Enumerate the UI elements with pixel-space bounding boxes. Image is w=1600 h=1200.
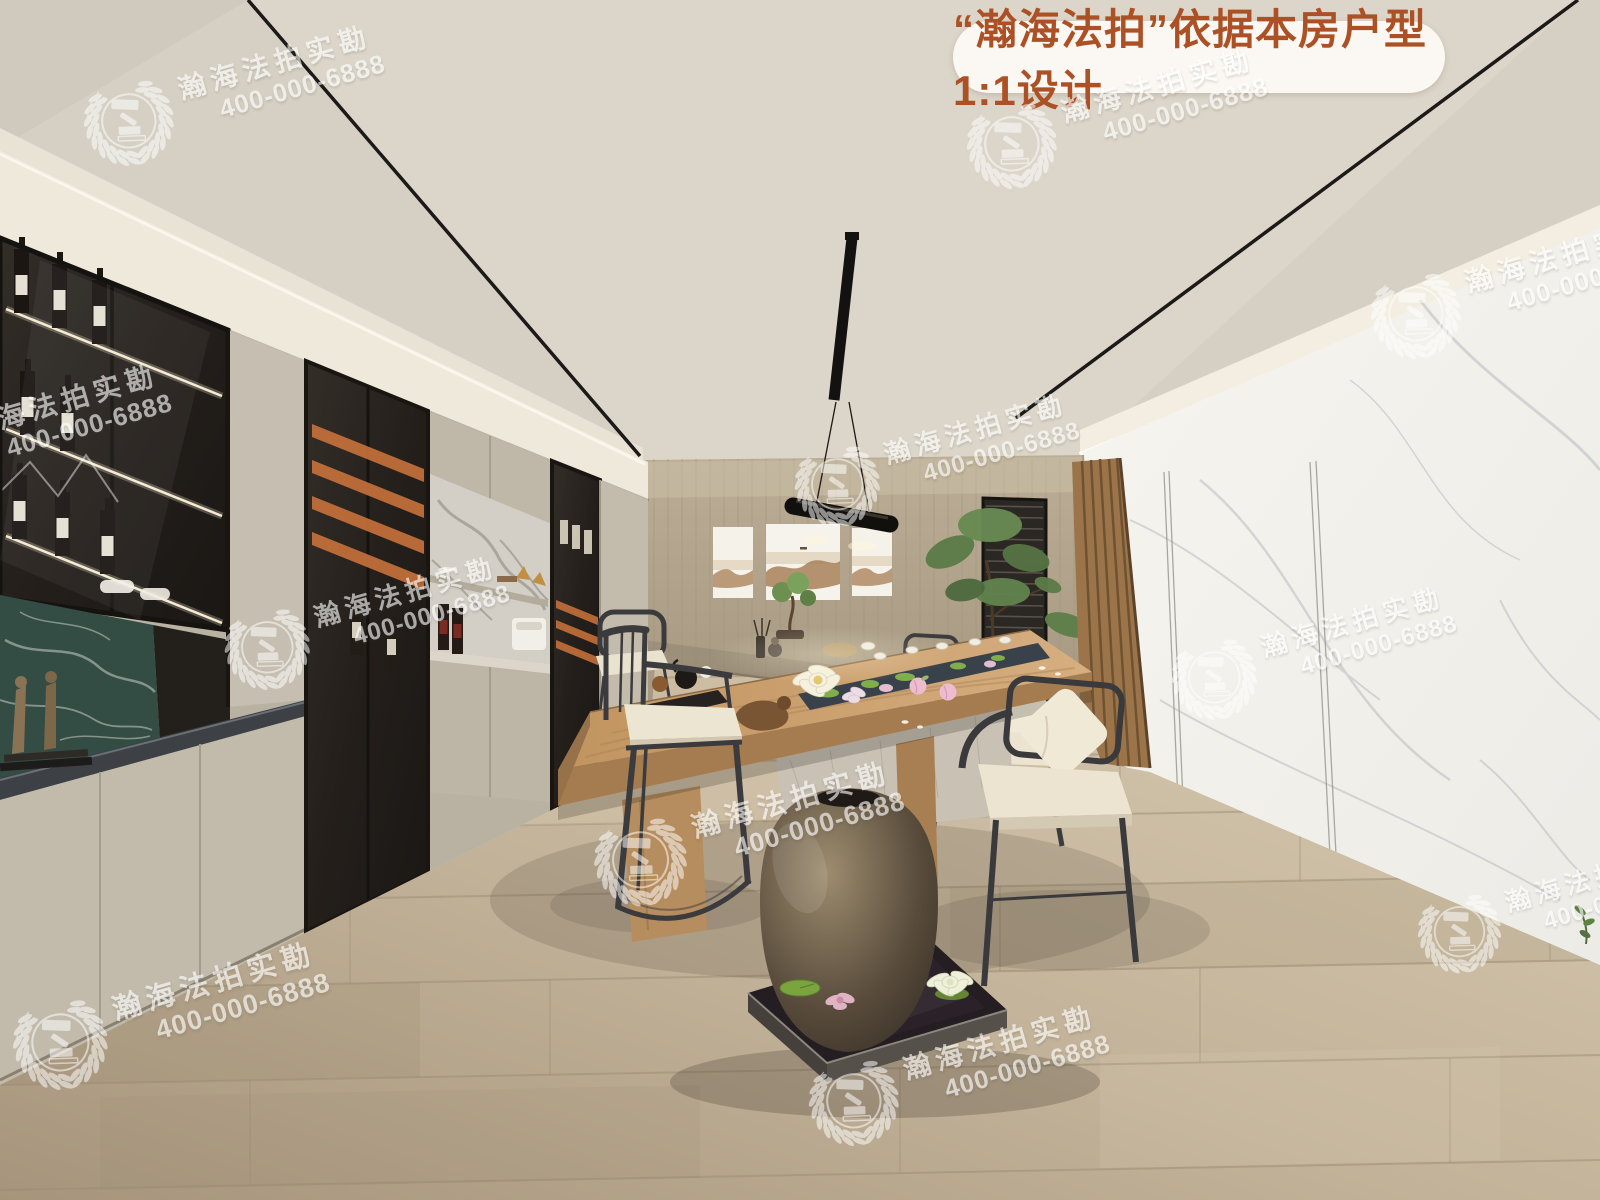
bronze-vase	[760, 788, 938, 1052]
design-claim-banner: “瀚海法拍”依据本房户型1:1设计	[953, 21, 1445, 93]
banner-text: “瀚海法拍”依据本房户型1:1设计	[953, 0, 1445, 118]
interior-rendering	[0, 0, 1600, 1200]
screenshot-root: 瀚海法拍实勘400-000-6888瀚海法拍实勘400-000-6888瀚海法拍…	[0, 0, 1600, 1200]
tall-glass-vitrine	[306, 361, 428, 932]
display-niche	[428, 411, 552, 802]
